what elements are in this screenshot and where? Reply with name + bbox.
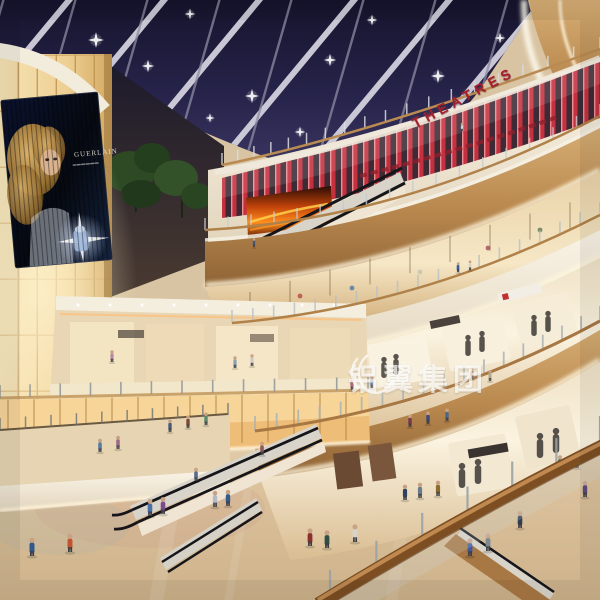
scene-canvas [0,0,600,600]
mall-atrium-rendering: THEATRES GUERLAIN 铝翼集团 [0,0,600,600]
